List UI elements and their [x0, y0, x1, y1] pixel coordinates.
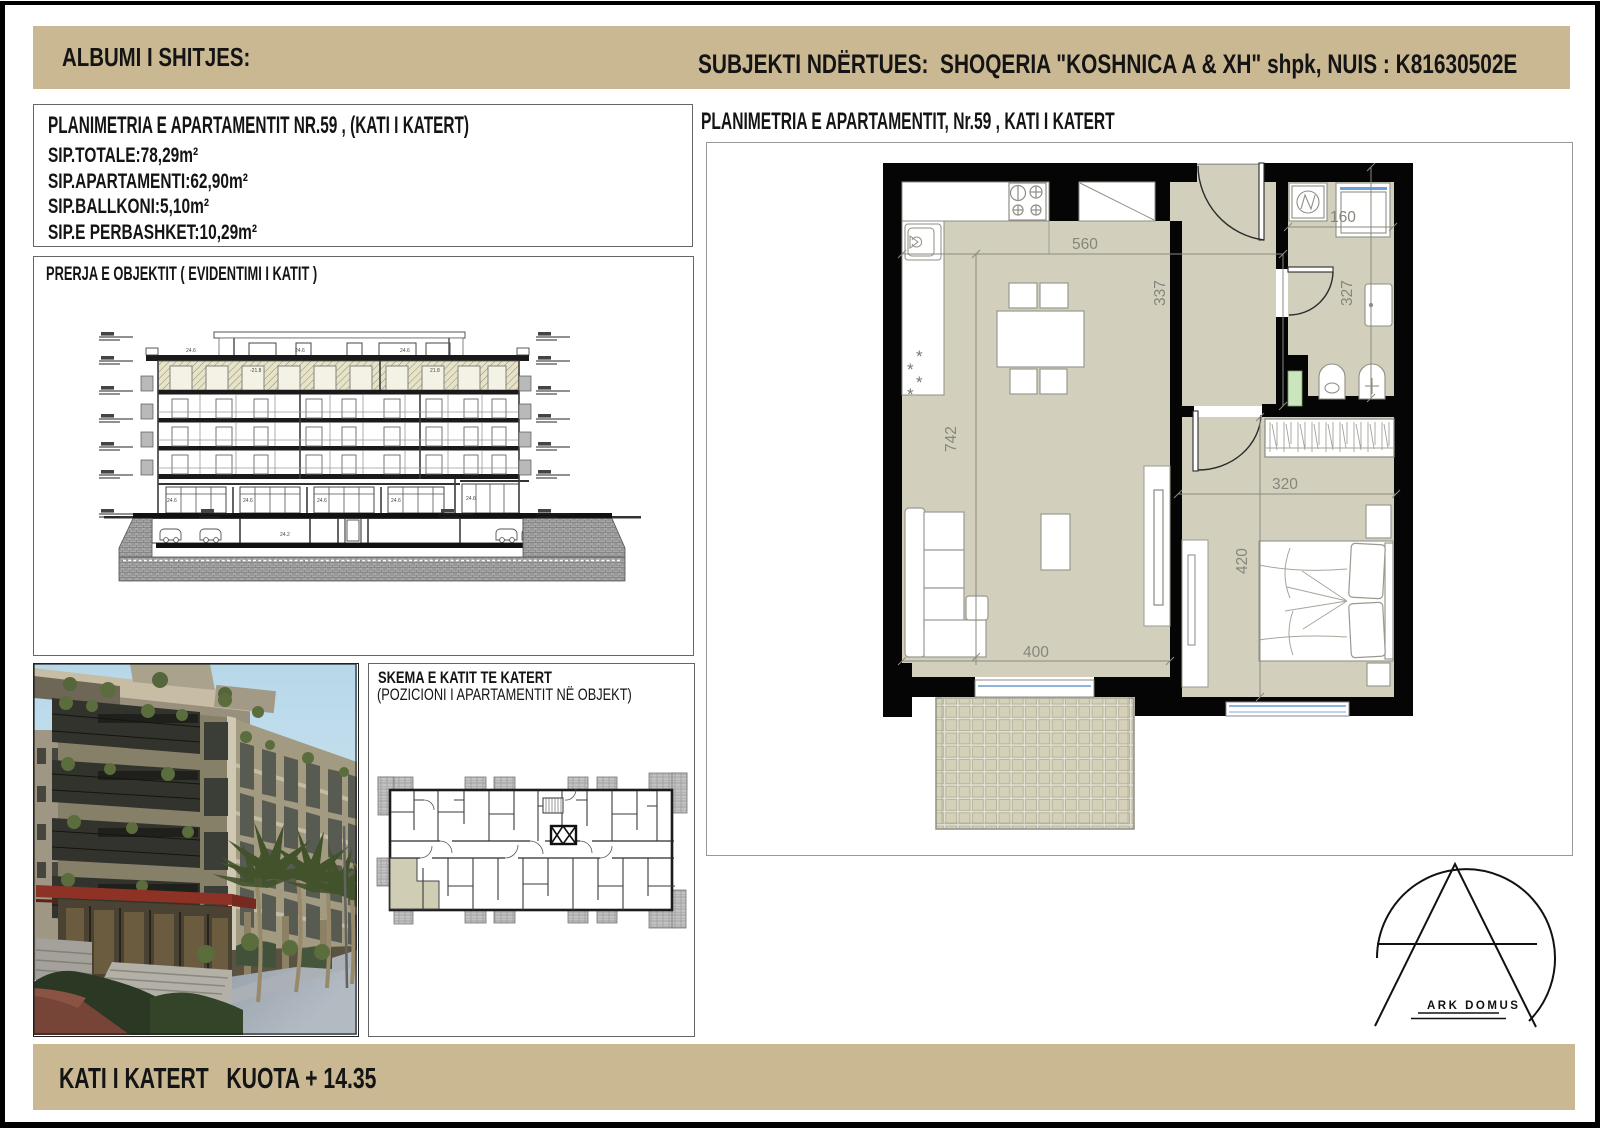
svg-text:24.6: 24.6 — [391, 498, 401, 504]
svg-text:24.6: 24.6 — [317, 498, 327, 504]
svg-text:24.6: 24.6 — [295, 348, 305, 354]
svg-text:*: * — [907, 360, 914, 379]
svg-text:337: 337 — [1152, 280, 1169, 306]
svg-text:420: 420 — [1234, 548, 1251, 574]
svg-text:400: 400 — [1023, 644, 1049, 661]
svg-text:24.6: 24.6 — [167, 498, 177, 504]
svg-text:-21.8: -21.8 — [250, 368, 262, 374]
svg-text:24.2: 24.2 — [280, 532, 290, 538]
svg-text:*: * — [916, 347, 923, 366]
svg-text:21.8: 21.8 — [430, 368, 440, 374]
svg-text:ARK DOMUS: ARK DOMUS — [1427, 1000, 1520, 1012]
svg-text:24.6: 24.6 — [243, 498, 253, 504]
svg-text:560: 560 — [1072, 236, 1098, 253]
svg-text:742: 742 — [943, 426, 960, 452]
svg-text:24.6: 24.6 — [186, 348, 196, 354]
svg-text:24.6: 24.6 — [400, 348, 410, 354]
svg-text:*: * — [916, 373, 923, 392]
svg-text:160: 160 — [1330, 209, 1356, 226]
svg-text:24.6: 24.6 — [466, 496, 476, 502]
svg-text:320: 320 — [1272, 476, 1298, 493]
svg-text:*: * — [907, 385, 914, 404]
svg-text:327: 327 — [1339, 280, 1356, 306]
